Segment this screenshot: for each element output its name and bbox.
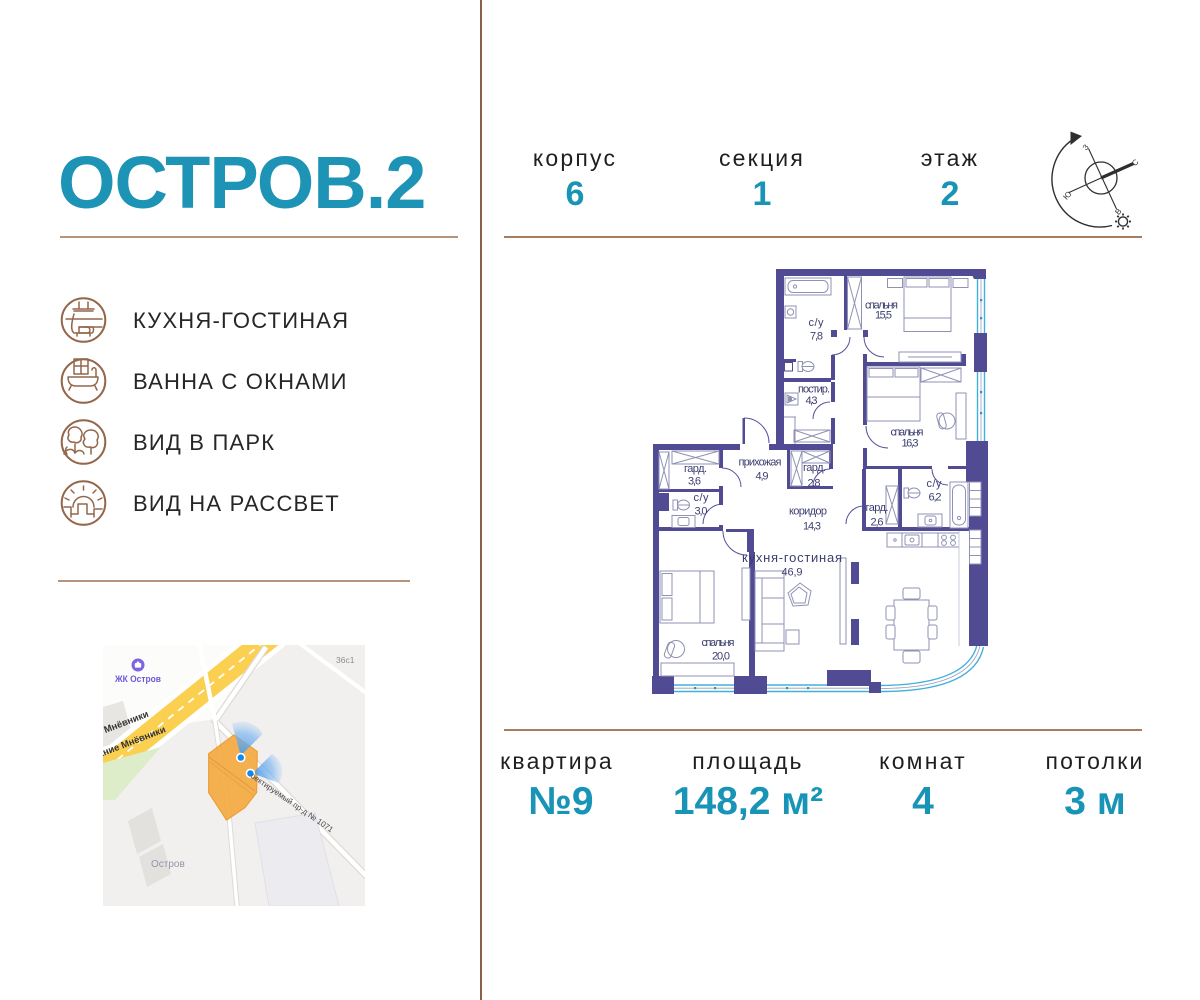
svg-text:В: В bbox=[1113, 207, 1123, 217]
svg-text:С: С bbox=[1130, 157, 1141, 167]
svg-text:гард.: гард. bbox=[866, 502, 889, 514]
svg-text:20,0: 20,0 bbox=[712, 651, 730, 663]
svg-text:ЖК Остров: ЖК Остров bbox=[114, 674, 161, 684]
svg-text:прихожая: прихожая bbox=[739, 457, 782, 469]
svg-text:6,2: 6,2 bbox=[929, 492, 942, 504]
svg-text:гард.: гард. bbox=[803, 462, 826, 474]
svg-text:с/у: с/у bbox=[809, 317, 825, 329]
svg-text:2,6: 2,6 bbox=[871, 517, 884, 529]
svg-text:16,3: 16,3 bbox=[902, 438, 919, 450]
svg-text:гард.: гард. bbox=[684, 463, 707, 475]
svg-text:3,0: 3,0 bbox=[695, 506, 708, 518]
svg-text:кухня-гостиная: кухня-гостиная bbox=[742, 550, 842, 565]
svg-text:15,5: 15,5 bbox=[875, 310, 892, 322]
svg-text:4,3: 4,3 bbox=[806, 395, 818, 407]
svg-text:7,8: 7,8 bbox=[810, 331, 823, 343]
svg-text:спальня: спальня bbox=[702, 637, 735, 649]
svg-text:3,6: 3,6 bbox=[688, 476, 701, 488]
svg-text:с/у: с/у bbox=[927, 478, 943, 490]
svg-text:коридор: коридор bbox=[789, 506, 827, 518]
svg-text:2,8: 2,8 bbox=[808, 478, 821, 490]
svg-text:4,9: 4,9 bbox=[756, 471, 769, 483]
svg-text:46,9: 46,9 bbox=[782, 567, 803, 579]
svg-text:постир.: постир. bbox=[798, 384, 830, 396]
svg-text:с/у: с/у bbox=[694, 492, 710, 504]
svg-text:14,3: 14,3 bbox=[803, 521, 821, 533]
svg-text:Остров: Остров bbox=[151, 859, 185, 870]
svg-text:36с1: 36с1 bbox=[336, 655, 355, 665]
